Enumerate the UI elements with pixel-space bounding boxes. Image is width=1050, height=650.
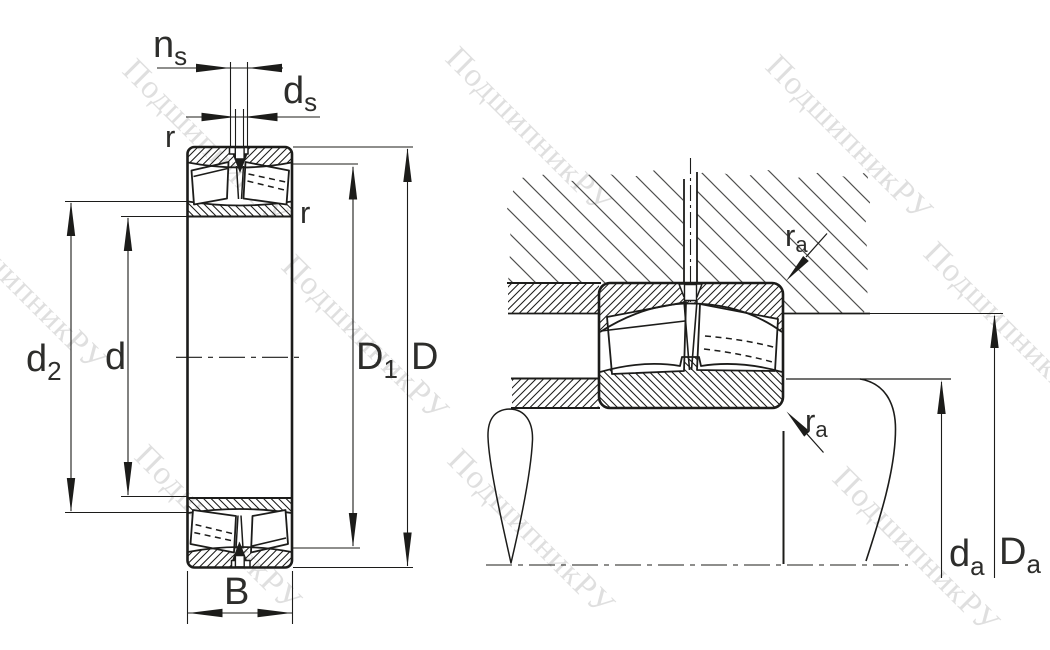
label-d: d: [105, 336, 126, 378]
label-B: B: [224, 571, 249, 613]
watermark: ПодшипникРУ: [916, 235, 1050, 416]
label-r-outer: r: [165, 119, 175, 154]
watermark: ПодшипникРУ: [440, 442, 621, 623]
label-D: D: [411, 336, 438, 378]
bearing-dimension-drawing: ПодшипникРУ ПодшипникРУ ПодшипникРУ Подш…: [0, 0, 1050, 650]
rv-bearing: [599, 283, 783, 408]
lv-bearing-internals: [176, 147, 299, 568]
watermarks: ПодшипникРУ ПодшипникРУ ПодшипникРУ Подш…: [0, 40, 1050, 641]
label-ns: ns: [153, 24, 187, 71]
label-ds: ds: [283, 70, 317, 117]
label-Da: Da: [999, 531, 1041, 579]
right-view-mounting: ra ra da Da: [486, 158, 1041, 581]
watermark: ПодшипникРУ: [0, 198, 113, 379]
label-ra-bottom: ra: [805, 403, 828, 442]
label-da: da: [949, 533, 985, 581]
label-r-inner: r: [300, 195, 310, 230]
